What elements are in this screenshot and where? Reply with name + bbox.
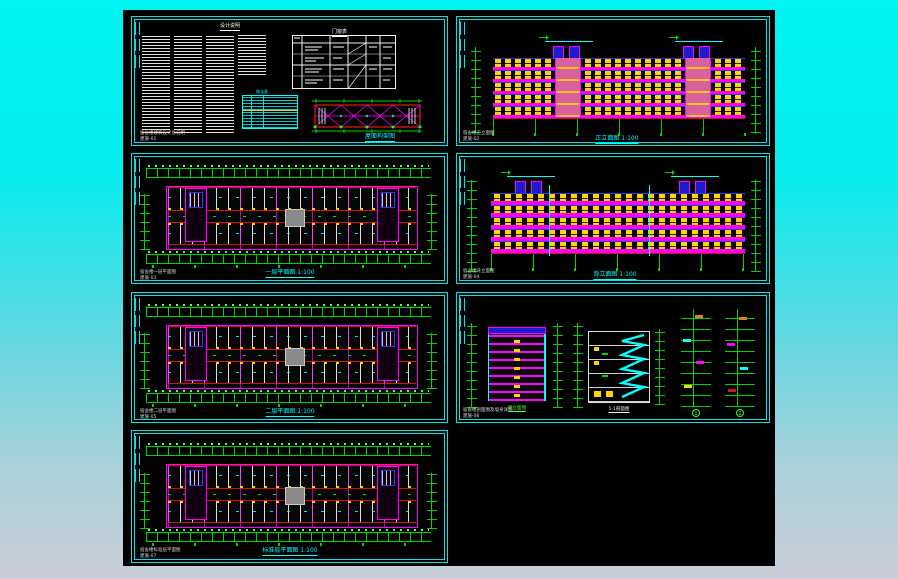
stair-block: [285, 348, 305, 366]
grid-drop-lines: [491, 254, 745, 268]
notes-text-column: [206, 35, 234, 133]
stair-block: [285, 487, 305, 505]
floor-plan-body: [166, 325, 418, 389]
floor-plan-body: [166, 464, 418, 528]
building-elevation: [493, 58, 745, 119]
stairwell-right: [377, 188, 399, 242]
notes-text-column: [142, 35, 170, 133]
sheet-sections-details[interactable]: 侧立面图 1-1剖面图 1 2: [456, 292, 770, 423]
door-window-schedule-table: [292, 35, 396, 89]
grid-drop-lines: [493, 119, 745, 133]
floor-band: [491, 205, 745, 217]
sheet-footer: 宿舍楼背立面图 建施-04: [463, 269, 495, 280]
detail-caption-1: 1: [692, 409, 700, 417]
dimension-chain-left: [467, 180, 477, 272]
detail-callout: [739, 317, 747, 320]
detail-caption-2: 2: [736, 409, 744, 417]
sheet-footer: 宿舍楼正立面图 建施-02: [463, 131, 495, 142]
stairwell-left: [185, 466, 207, 520]
dimension-chain-left: [140, 194, 150, 250]
entry-block: [285, 209, 305, 227]
floor-band: [491, 193, 745, 205]
stairwell-right: [377, 327, 399, 381]
dimension-chain-right: [751, 180, 761, 272]
drawing-caption: 一层平面图 1:100: [265, 270, 314, 278]
dimension-chain-right: [427, 473, 437, 529]
wall-detail-ladder: [725, 309, 755, 407]
dimension-chain: [655, 329, 665, 405]
sheet-design-notes[interactable]: 设计说明: [131, 16, 448, 146]
detail-callout: [695, 315, 703, 318]
detail-callout: [728, 389, 736, 392]
dimension-chain: [467, 323, 477, 408]
sheet-footer: 宿舍楼建筑设计总说明 建施-01: [140, 131, 185, 142]
sheet-standard-floor-plan[interactable]: 标准层平面图 1:100 宿舍楼标准层平面图 建施-07: [131, 430, 448, 563]
schedule-title: 门窗表: [332, 28, 347, 37]
grid-bubbles: [152, 265, 432, 268]
sheet-footer: 宿舍楼标准层平面图 建施-07: [140, 548, 181, 559]
detail-callout: [684, 385, 692, 388]
drawing-caption: 背立面图 1:100: [593, 272, 636, 280]
section-caption: 1-1剖面图: [609, 406, 630, 413]
roof-structure-right: [679, 172, 717, 194]
detail-callout: [727, 343, 735, 346]
sheet-first-floor-plan[interactable]: 一层平面图 1:100 宿舍楼一层平面图 建施-03: [131, 153, 448, 284]
drawing-caption: 标准层平面图 1:100: [262, 548, 317, 556]
side-elevation-block: [488, 333, 546, 401]
floor-band: [491, 229, 745, 241]
fold-marks: [460, 298, 465, 344]
cad-canvas[interactable]: 设计说明: [123, 10, 775, 566]
dimension-chain-right: [751, 47, 761, 133]
stairwell-right: [377, 466, 399, 520]
dimension-chain-right: [427, 333, 437, 389]
fold-marks: [460, 22, 465, 68]
page: { "window": { "background_top": "#00f4f4…: [0, 0, 898, 579]
dimension-band-top: [146, 168, 431, 178]
dimension-chain-left: [140, 473, 150, 529]
dimension-chain-right: [427, 194, 437, 250]
grid-bubbles: [152, 543, 432, 546]
floor-band: [491, 217, 745, 229]
detail-callout: [696, 361, 704, 364]
drawing-caption: 二层平面图 1:100: [265, 409, 314, 417]
dimension-chain-left: [140, 333, 150, 389]
stair-tower: [685, 58, 711, 117]
roof-structure-left: [515, 172, 553, 194]
roof-structure-left: [553, 37, 591, 59]
grid-bubbles: [152, 404, 432, 407]
building-elevation: [491, 193, 745, 254]
dimension-chain: [553, 323, 563, 408]
sheet-front-elevation[interactable]: 正立面图 1:100 宿舍楼正立面图 建施-02: [456, 16, 770, 146]
fold-marks: [460, 159, 465, 205]
dimension-band-bottom: [146, 254, 431, 264]
drawing-caption: 正立面图 1:100: [595, 136, 638, 144]
dimension-band-top: [146, 307, 431, 317]
stairwell-left: [185, 188, 207, 242]
sheet-rear-elevation[interactable]: 背立面图 1:100 宿舍楼背立面图 建施-04: [456, 153, 770, 284]
dimension-chain: [573, 323, 583, 408]
notes-title: 设计说明: [220, 22, 240, 31]
stair-tower: [555, 58, 581, 117]
sheet-footer: 宿舍楼剖面图及墙身详图 建施-06: [463, 408, 513, 419]
sheet-second-floor-plan[interactable]: 二层平面图 1:100 宿舍楼二层平面图 建施-05: [131, 292, 448, 423]
detail-callout: [683, 339, 691, 342]
roof-structure-right: [683, 37, 721, 59]
roof-truss-detail: [308, 99, 426, 133]
floor-plan-body: [166, 186, 418, 250]
finish-table: [242, 95, 298, 129]
downpipe: [649, 185, 650, 256]
dimension-chain-left: [471, 47, 481, 133]
sheet-footer: 宿舍楼二层平面图 建施-05: [140, 409, 176, 420]
stair-zigzag: [588, 331, 650, 403]
wall-detail-ladder: [681, 309, 711, 407]
fold-marks: [135, 22, 140, 68]
detail-callout: [740, 367, 748, 370]
dimension-band-top: [146, 446, 431, 456]
dimension-band-bottom: [146, 393, 431, 403]
downpipe: [549, 185, 550, 256]
sheet-footer: 宿舍楼一层平面图 建施-03: [140, 270, 176, 281]
notes-text-column: [174, 35, 202, 133]
truss-caption: 屋面构架图: [365, 134, 395, 142]
stairwell-left: [185, 327, 207, 381]
dimension-band-bottom: [146, 532, 431, 542]
notes-text-column: [238, 35, 266, 75]
floor-band: [491, 241, 745, 253]
